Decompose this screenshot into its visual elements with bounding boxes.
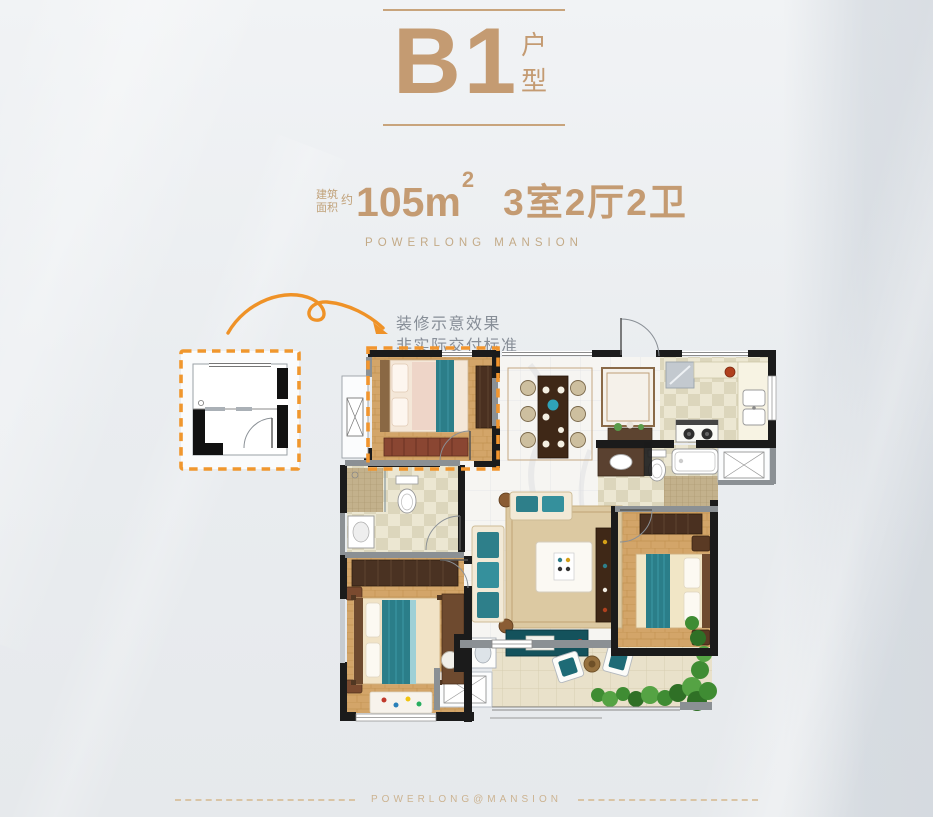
door-arc-icon [621,319,659,356]
schematic-mini-plan [178,347,303,478]
footer-dash-left [175,799,355,801]
sink [743,390,765,406]
footer-brand-text: POWERLONG@MANSION [371,794,562,805]
bed-headboard [354,598,363,684]
window-bay-north [342,376,368,458]
ac-platform-right [718,448,770,482]
title-rule-bottom [383,124,565,126]
dining-chair [521,433,536,448]
area-superscript: 2 [462,167,474,192]
room-layout: 3室2厅2卫 [503,184,688,221]
area-prefix: 建筑 面积 [316,189,338,215]
unit-type-char: 型 [521,68,547,94]
bed-bench [384,438,468,456]
dining-chair [521,407,536,422]
entry-furniture [602,368,654,441]
dining-chair [571,381,586,396]
dining-chair [571,433,586,448]
area-approx: 约 [341,191,353,208]
nightstand [692,536,710,551]
toilet [398,489,416,513]
specs-row: 建筑 面积 约 105m2 3室2厅2卫 [316,182,688,223]
mini-plan-walls [193,362,288,455]
play-mat [370,692,432,713]
console-table [608,428,652,441]
unit-type-char: 户 [521,32,547,58]
dining-chair [571,407,586,422]
basin [610,455,632,470]
sink [743,409,765,425]
bed-runner [436,360,454,432]
floor-plan [340,310,790,735]
poster-canvas: B1 户 型 建筑 面积 约 105m2 3室2厅2卫 POWERLONG MA… [0,0,933,817]
centerpiece [548,400,559,411]
wardrobe [352,560,458,586]
area-value: 105m2 [356,182,473,223]
pot [725,367,735,377]
entry-rug [602,368,654,426]
unit-title: B1 [393,14,519,108]
brand-header: POWERLONG MANSION [306,237,642,249]
footer-dash-right [578,799,758,801]
wardrobe [476,366,492,428]
bed-headboard [702,554,710,628]
brand-footer: POWERLONG@MANSION [0,794,933,805]
balcony-railing [492,707,680,710]
bedroom-south-furniture [636,514,710,645]
unit-type-label: 户 型 [521,32,547,94]
dining-chair [521,381,536,396]
bed-headboard [380,360,390,432]
